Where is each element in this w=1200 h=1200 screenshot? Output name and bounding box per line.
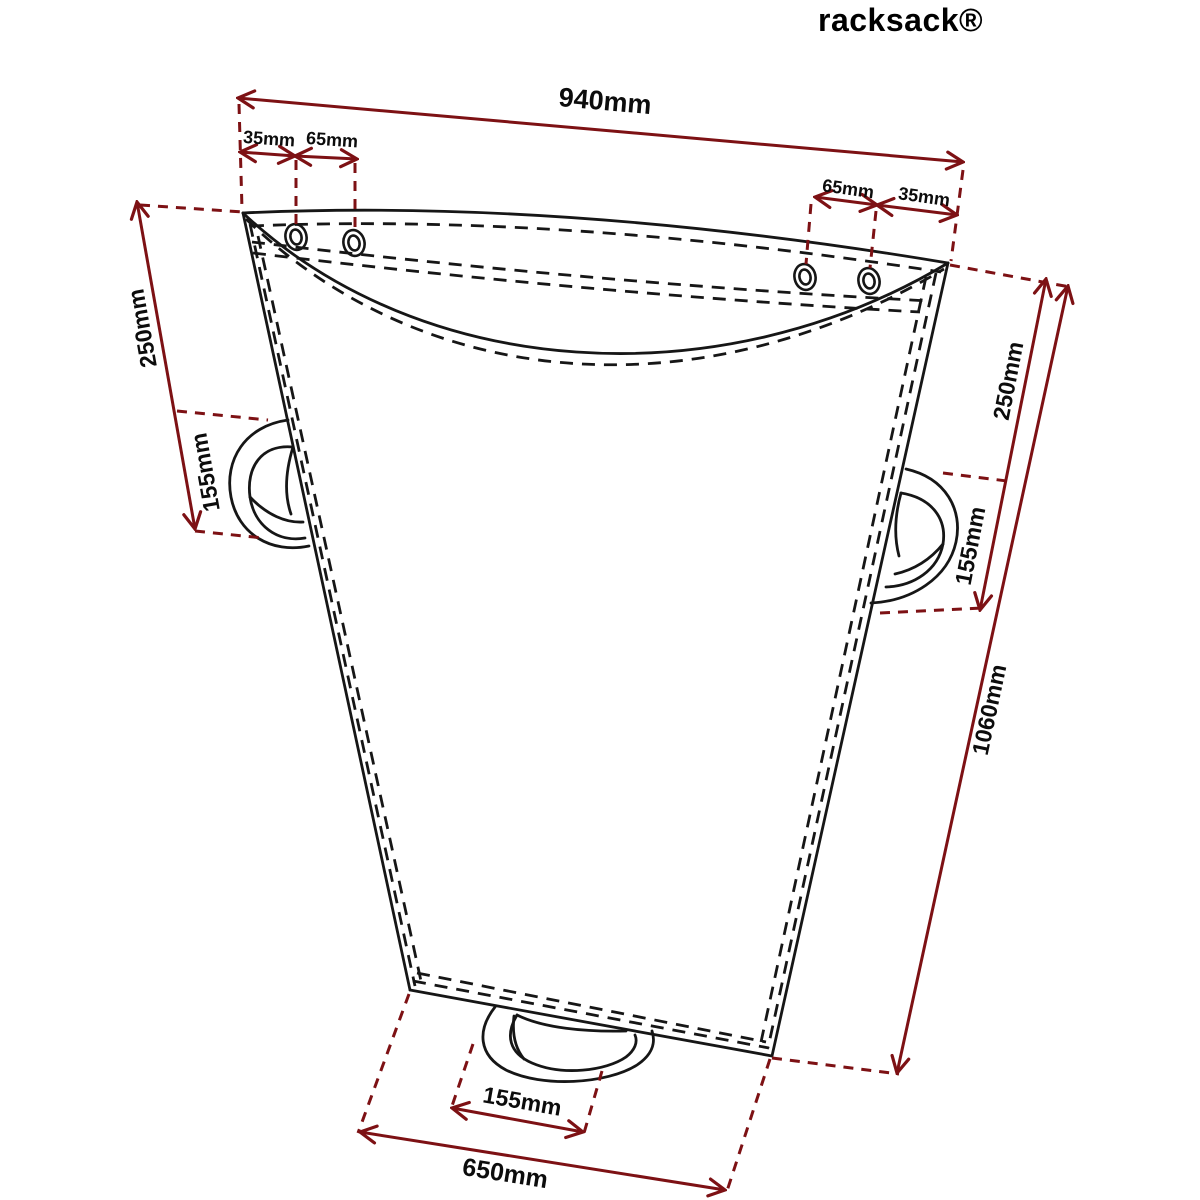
label-left-corner-offset: 35mm [242,127,295,151]
ext-eyelet-4 [870,211,876,268]
technical-drawing-page: racksack® [0,0,1200,1200]
bag-left-edge [243,213,410,990]
ext-left-handle-top [177,411,268,420]
bag-bottom-edge [410,990,772,1056]
bag-right-edge [772,263,948,1056]
eyelet-3 [792,262,818,292]
ext-right-handle-bottom [880,608,983,613]
label-right-corner-offset: 35mm [897,183,951,210]
front-drape-dashed [246,219,944,365]
dimension-extension-lines [140,104,1070,1191]
left-handle-twist [287,447,293,514]
dim-line-35-left [240,152,295,156]
bottom-handle-inner [510,1015,636,1071]
right-side-handle [871,469,958,603]
handles [230,420,958,1082]
label-side-height: 1060mm [967,662,1012,757]
eyelets [283,222,882,296]
ext-top-right-corner [950,265,1070,287]
label-left-eyelet-spacing: 65mm [305,128,358,152]
ext-bottom-left-corner [358,994,409,1133]
bag-seam-lines [246,219,944,1048]
bag-front-drape-curve [243,213,948,354]
right-seam-dashed-1 [768,273,936,1048]
bottom-seam-dashed-1 [413,981,769,1048]
right-handle-twist [896,493,901,556]
dim-line-right-inner [980,279,1046,610]
ext-940-left [239,104,242,209]
label-top-width: 940mm [557,82,652,120]
left-seam-dashed-1 [250,224,415,986]
inner-band-dashed-lower [253,253,920,312]
label-right-top-to-handle: 250mm [988,339,1029,422]
ext-bottom-right-to-1060 [772,1058,899,1074]
right-seam-dashed-2 [761,277,926,1042]
label-left-top-to-handle: 250mm [122,287,161,370]
ext-bottom-right-to-650 [727,1059,770,1191]
ext-top-left-corner [140,205,243,212]
left-seam-dashed-2 [258,236,421,981]
ext-right-handle-top [943,473,1007,481]
dim-line-65-left [295,156,357,159]
right-handle-strap [895,544,943,574]
dimension-labels: 940mm 35mm 65mm 65mm 35mm 250mm 155mm 25… [122,82,1028,1194]
bag-outline [243,210,948,1056]
eyelet-4 [856,266,882,296]
racksack-dimension-diagram: 940mm 35mm 65mm 65mm 35mm 250mm 155mm 25… [0,0,1200,1200]
ext-bottom-handle-left [451,1044,473,1109]
